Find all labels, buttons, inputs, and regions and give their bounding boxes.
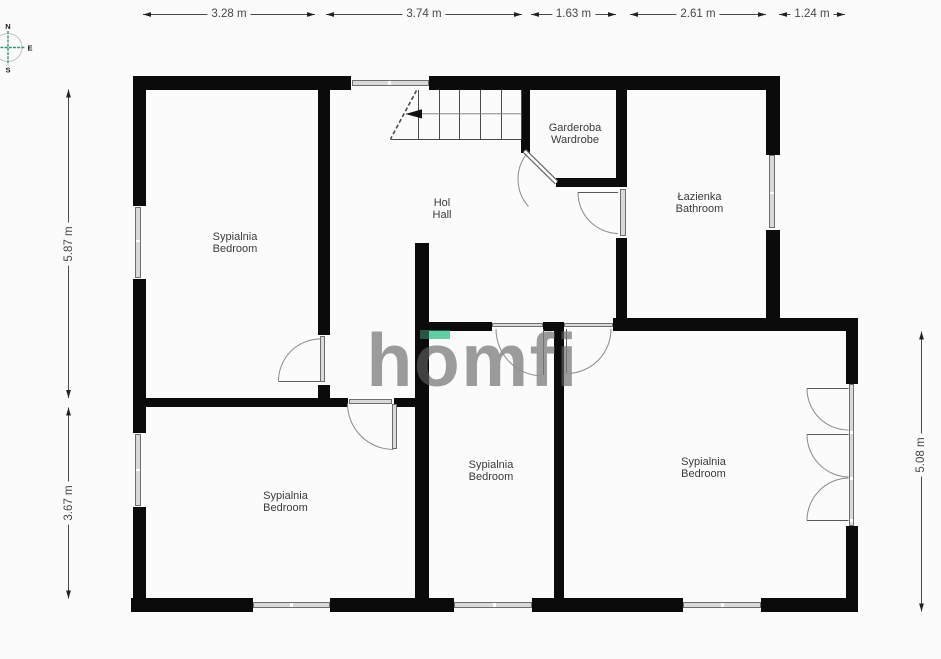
svg-text:S: S xyxy=(5,66,10,75)
svg-text:E: E xyxy=(27,44,32,53)
svg-text:N: N xyxy=(5,22,10,31)
